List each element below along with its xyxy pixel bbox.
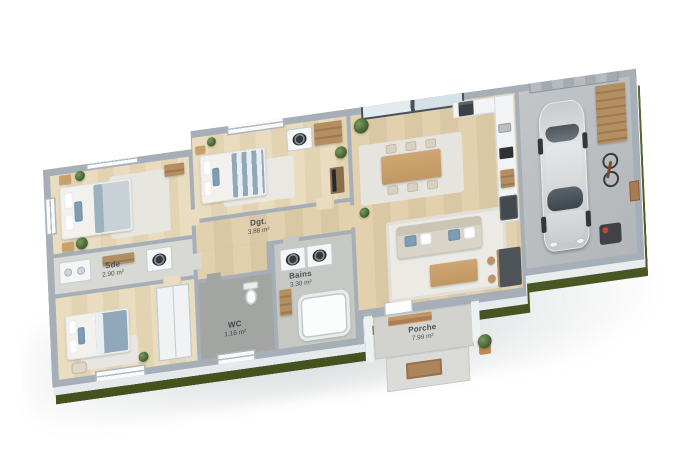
sink [77,266,85,275]
dining-chair [407,182,418,193]
window-bedroom1-left [46,199,55,234]
mower-detail [602,227,608,234]
pillow-blue [78,327,86,345]
kitchen-shelf [500,168,515,188]
washer [279,246,306,272]
dining-chair [387,185,398,196]
car-wheel [586,210,592,227]
car [538,98,590,253]
pillow [69,339,78,354]
nightstand [195,145,205,154]
bedroom2-shelving [314,120,343,146]
sde-vanity [59,258,92,285]
pillow [65,214,75,231]
garage-side-door [630,181,639,200]
car-wheel [582,132,588,149]
sofa-pillow-blue [448,229,460,242]
dining-chair [385,144,396,155]
tv-console [330,166,345,194]
tv-screen [332,169,337,192]
bedroom2-bed [200,147,267,204]
floor-plan-render: Dgt. 3.88 m² Sde 2.90 m² WC 1.16 m² Bain… [0,0,700,467]
bedroom3-wardrobe [156,283,193,362]
sofa-pillow [420,233,431,246]
fridge [499,194,518,221]
nightstand [59,174,71,185]
room-label-dgt: Dgt. 3.88 m² [247,217,270,236]
door-opening-sde [189,253,202,271]
wc-room [198,273,275,360]
pillow [68,320,77,335]
door-opening-bedroom1 [187,209,200,227]
door-opening-wc [207,272,221,286]
blanket-striped [231,149,265,198]
door-opening-hall-living [346,205,359,229]
pillow [64,192,74,209]
bedroom3-bed [65,307,130,360]
car-roof [545,141,582,188]
bains-shelf [279,289,292,317]
lawn-mower [599,222,622,245]
pillow-blue [212,168,220,187]
room-label-wc: WC 1.16 m² [224,319,247,338]
room-label-sde: Sde 2.90 m² [102,260,125,279]
dining-chair [427,179,438,190]
pillow [204,181,213,197]
dryer [306,243,333,269]
car-wheel [538,138,544,155]
bedroom1-bed [60,178,134,240]
dining-chair [425,138,436,149]
sofa-pillow-blue [404,235,416,248]
scene-3d: Dgt. 3.88 m² Sde 2.90 m² WC 1.16 m² Bain… [42,66,670,463]
washer-bedroom2 [286,126,313,152]
pillow [203,160,212,176]
washing-machine-sde [146,246,173,273]
armchair [71,361,87,375]
nightstand [62,241,74,252]
oven [458,100,473,116]
room-label-bains: Bains 3.30 m² [289,270,312,289]
bathtub [297,289,351,342]
sofa-pillow [464,227,475,240]
dining-chair [405,141,416,152]
pillow-blue [74,201,83,222]
kitchen-bar [497,246,522,287]
blanket-fold [95,313,105,354]
cooktop [499,146,513,159]
garage-storage-rack [595,82,627,144]
kitchen-sink [498,122,511,133]
car-wheel [541,216,547,233]
door-opening-bedroom2 [316,196,334,211]
sink [64,268,72,277]
